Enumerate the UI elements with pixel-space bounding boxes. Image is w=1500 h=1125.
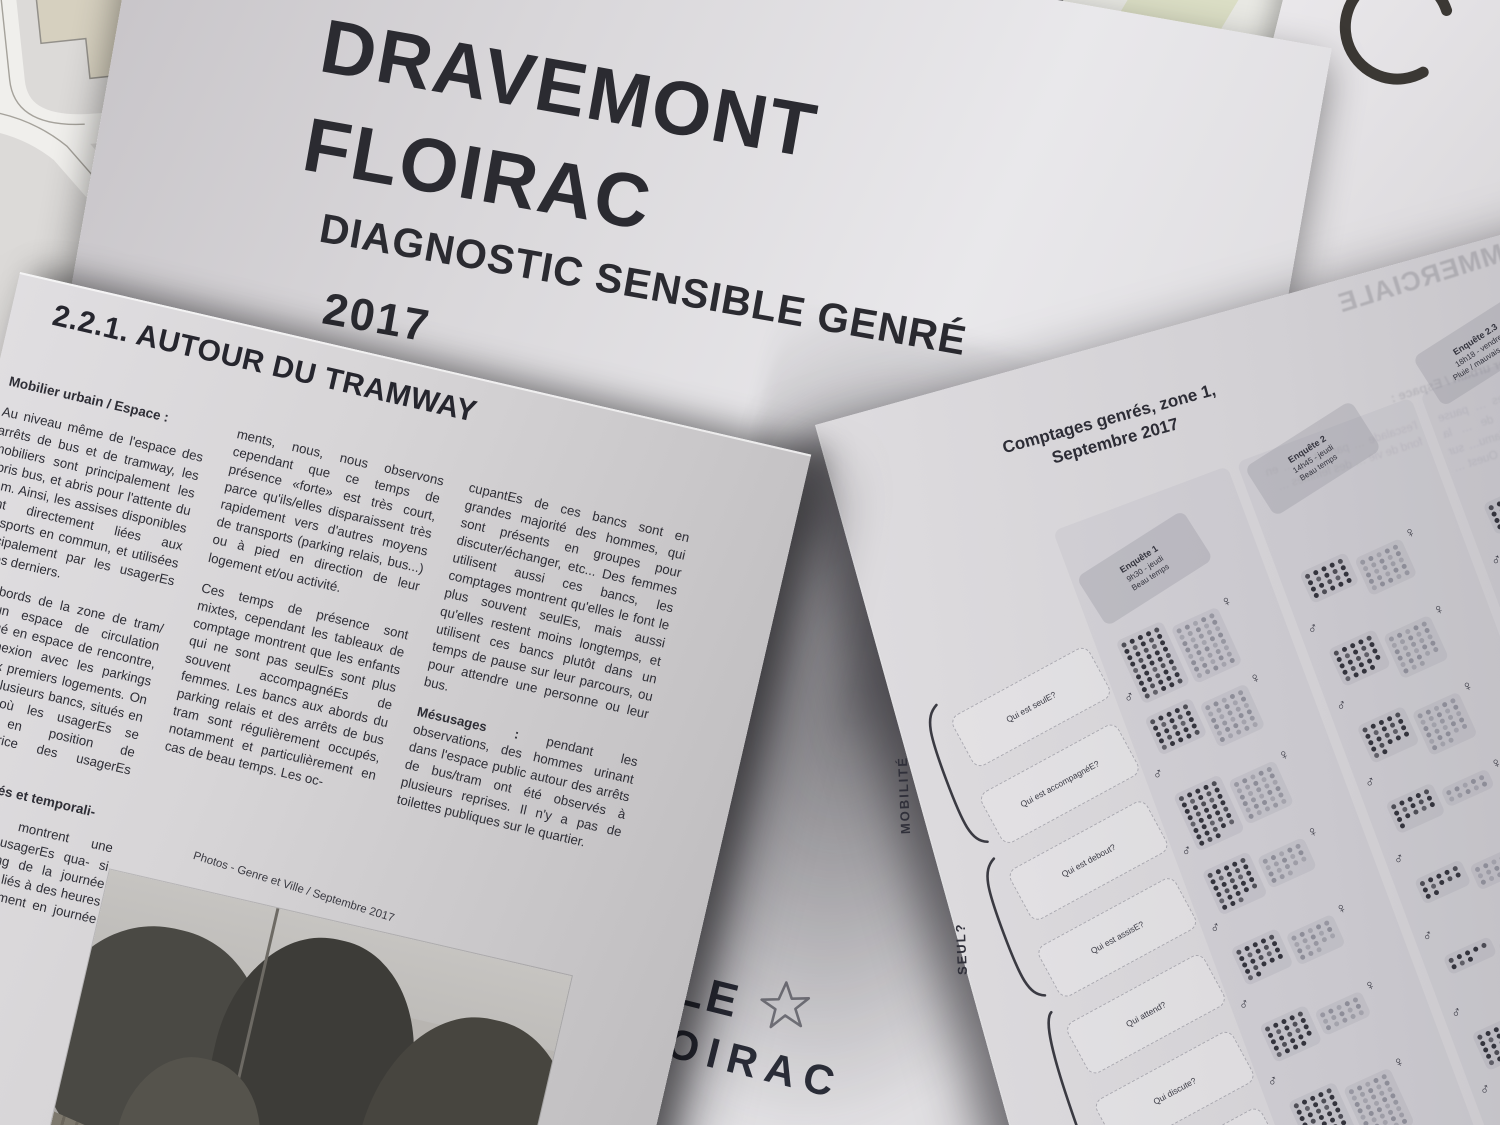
- count-dot: [1220, 822, 1227, 829]
- count-dot: [1269, 772, 1276, 779]
- count-dot: [1370, 723, 1377, 730]
- count-dot: [1481, 781, 1488, 788]
- count-dot: [1209, 820, 1216, 827]
- count-dot: [1272, 779, 1279, 786]
- count-dot: [1198, 633, 1205, 640]
- count-dot: [1421, 621, 1428, 628]
- count-dot: [1238, 896, 1245, 903]
- count-dot: [1241, 719, 1248, 726]
- count-dot: [1161, 721, 1168, 728]
- count-dot: [1193, 827, 1200, 834]
- count-dot: [1355, 1003, 1362, 1010]
- count-dot: [1221, 697, 1228, 704]
- count-dot: [1392, 728, 1399, 735]
- count-dot: [1321, 565, 1328, 572]
- count-dot: [1327, 1110, 1334, 1117]
- count-dot: [1270, 795, 1277, 802]
- count-dot: [1408, 635, 1415, 642]
- male-symbol: ♂: [1121, 688, 1137, 706]
- count-dot: [1396, 1105, 1403, 1112]
- count-dot: [1178, 736, 1185, 743]
- count-dot: [1196, 649, 1203, 656]
- count-dot: [1445, 708, 1452, 715]
- count-dot: [1382, 564, 1389, 571]
- count-dot: [1192, 620, 1199, 627]
- column3-paragraph1: cupantEs de ces bancs sont en grandes ma…: [422, 479, 691, 741]
- count-dot: [1255, 948, 1262, 955]
- count-dot: [1432, 744, 1439, 751]
- count-dot: [1252, 721, 1259, 728]
- count-dot: [1379, 1113, 1386, 1120]
- count-dot: [1221, 661, 1228, 668]
- count-dot: [1269, 934, 1276, 941]
- count-dot: [1157, 633, 1164, 640]
- count-dot: [1397, 655, 1404, 662]
- count-dot: [1425, 650, 1432, 657]
- count-dot: [1295, 1027, 1302, 1034]
- count-dot: [1396, 816, 1403, 823]
- count-dot: [1144, 693, 1151, 700]
- count-dot: [1413, 809, 1420, 816]
- count-dot: [1216, 730, 1223, 737]
- count-dot: [1293, 859, 1300, 866]
- count-dot: [1190, 636, 1197, 643]
- count-dot: [1345, 675, 1352, 682]
- count-dot: [1206, 629, 1213, 636]
- count-dot: [1264, 805, 1271, 812]
- count-dot: [1294, 941, 1301, 948]
- count-dot: [1387, 1086, 1394, 1093]
- count-dot: [1250, 796, 1257, 803]
- count-dot: [1366, 635, 1373, 642]
- count-dot: [1337, 558, 1344, 565]
- count-dot: [1279, 1035, 1286, 1042]
- count-dot: [1329, 1094, 1336, 1101]
- count-dot: [1454, 785, 1461, 792]
- count-dot: [1218, 654, 1225, 661]
- count-dot: [1219, 897, 1226, 904]
- count-dot: [1344, 1000, 1351, 1007]
- count-dot: [1459, 717, 1466, 724]
- count-dot: [1488, 875, 1495, 882]
- female-symbol: ♀: [1333, 900, 1349, 918]
- count-dot: [1313, 592, 1320, 599]
- count-dot: [1392, 544, 1399, 551]
- count-dot: [1305, 944, 1312, 951]
- count-dot: [1480, 1040, 1487, 1047]
- count-dot: [1488, 1036, 1495, 1043]
- count-dot: [1221, 881, 1228, 888]
- count-dot: [1332, 1100, 1339, 1107]
- count-dot: [1385, 570, 1392, 577]
- count-dot: [1238, 689, 1245, 696]
- count-dot: [1218, 632, 1225, 639]
- count-dot: [1419, 660, 1426, 667]
- count-dot: [1207, 836, 1214, 843]
- count-dot: [1341, 646, 1348, 653]
- count-dot: [1336, 1004, 1343, 1011]
- count-dot: [1155, 672, 1162, 679]
- count-dot: [1281, 857, 1288, 864]
- count-dot: [1496, 1033, 1500, 1040]
- count-dot: [1143, 647, 1150, 654]
- count-dot: [1182, 640, 1189, 647]
- count-dot: [1246, 870, 1253, 877]
- female-symbol: ♀: [1305, 823, 1321, 841]
- count-dot: [1176, 627, 1183, 634]
- male-symbol: ♂: [1333, 696, 1349, 714]
- count-dot: [1483, 862, 1490, 869]
- count-dot: [1360, 1114, 1367, 1121]
- count-dot: [1307, 579, 1314, 586]
- count-dot: [1157, 656, 1164, 663]
- mesusages-text: pendant les observations, des hommes uri…: [395, 721, 639, 849]
- count-dot: [1158, 737, 1165, 744]
- count-dot: [1388, 577, 1395, 584]
- count-dot: [1258, 770, 1265, 777]
- count-dot: [1384, 732, 1391, 739]
- count-dot: [1146, 653, 1153, 660]
- count-dot: [1199, 840, 1206, 847]
- count-dot: [1440, 741, 1447, 748]
- count-dot: [1493, 1026, 1500, 1033]
- count-dot: [1347, 1007, 1354, 1014]
- count-dot: [1350, 665, 1357, 672]
- count-dot: [1350, 1013, 1357, 1020]
- count-dot: [1289, 1014, 1296, 1021]
- count-dot: [1401, 563, 1408, 570]
- count-dot: [1413, 624, 1420, 631]
- count-dot: [1359, 1091, 1366, 1098]
- count-dot: [1390, 1115, 1397, 1122]
- count-dot: [1310, 1118, 1317, 1125]
- count-dot: [1132, 644, 1139, 651]
- count-dot: [1290, 1037, 1297, 1044]
- count-dot: [1332, 568, 1339, 575]
- count-dot: [1245, 807, 1252, 814]
- count-dot: [1207, 872, 1214, 879]
- count-dot: [1448, 737, 1455, 744]
- count-dot: [1456, 710, 1463, 717]
- count-dot: [1368, 739, 1375, 746]
- count-dot: [1436, 873, 1443, 880]
- count-dot: [1240, 857, 1247, 864]
- article-column-1: Mobilier urbain / Espace : Au niveau mêm…: [0, 373, 212, 959]
- count-dot: [1319, 582, 1326, 589]
- count-dot: [1216, 891, 1223, 898]
- female-dot-cluster: [1469, 845, 1500, 891]
- count-dot: [1497, 1056, 1500, 1063]
- article-column-3: cupantEs de ces bancs sont en grandes ma…: [392, 479, 691, 872]
- count-dot: [1373, 729, 1380, 736]
- count-dot: [1363, 565, 1370, 572]
- count-dot: [1429, 738, 1436, 745]
- count-dot: [1230, 716, 1237, 723]
- count-dot: [1256, 971, 1263, 978]
- count-dot: [1335, 1107, 1342, 1114]
- count-dot: [1452, 865, 1459, 872]
- count-dot: [1446, 789, 1453, 796]
- group-label: SEUL?: [953, 922, 970, 975]
- count-dot: [1155, 731, 1162, 738]
- count-dot: [1293, 1102, 1300, 1109]
- count-dot: [1144, 670, 1151, 677]
- count-dot: [1287, 870, 1294, 877]
- count-dot: [1394, 648, 1401, 655]
- count-dot: [1365, 1081, 1372, 1088]
- count-dot: [1262, 858, 1269, 865]
- male-dot-cluster: [1414, 859, 1472, 905]
- count-dot: [1395, 550, 1402, 557]
- count-dot: [1338, 581, 1345, 588]
- male-dot-cluster: [1230, 928, 1293, 986]
- count-dot: [1445, 730, 1452, 737]
- count-dot: [1310, 934, 1317, 941]
- count-dot: [1279, 850, 1286, 857]
- count-dot: [1433, 889, 1440, 896]
- count-dot: [1329, 1117, 1336, 1124]
- count-dot: [1260, 938, 1267, 945]
- count-dot: [1453, 704, 1460, 711]
- count-dot: [1243, 863, 1250, 870]
- count-dot: [1423, 788, 1430, 795]
- count-dot: [1327, 926, 1334, 933]
- count-dot: [1485, 1030, 1492, 1037]
- count-dot: [1212, 826, 1219, 833]
- count-dot: [1416, 631, 1423, 638]
- count-dot: [1379, 581, 1386, 588]
- count-dot: [1168, 658, 1175, 665]
- count-dot: [1270, 1038, 1277, 1045]
- count-dot: [1185, 647, 1192, 654]
- count-dot: [1421, 805, 1428, 812]
- count-dot: [1321, 1120, 1328, 1125]
- count-dot: [1398, 557, 1405, 564]
- count-dot: [1239, 794, 1246, 801]
- count-dot: [1362, 1097, 1369, 1104]
- count-dot: [1372, 648, 1379, 655]
- count-dot: [1357, 1107, 1364, 1114]
- count-dot: [1307, 1111, 1314, 1118]
- count-dot: [1271, 940, 1278, 947]
- count-dot: [1124, 648, 1131, 655]
- count-dot: [1247, 790, 1254, 797]
- count-dot: [1385, 1103, 1392, 1110]
- count-dot: [1225, 726, 1232, 733]
- count-dot: [1213, 701, 1220, 708]
- count-dot: [1244, 725, 1251, 732]
- count-dot: [1429, 801, 1436, 808]
- count-dot: [1267, 1032, 1274, 1039]
- count-dot: [1273, 860, 1280, 867]
- count-dot: [1214, 787, 1221, 794]
- count-dot: [1179, 634, 1186, 641]
- count-dot: [1395, 712, 1402, 719]
- count-dot: [1461, 723, 1468, 730]
- count-dot: [1220, 799, 1227, 806]
- count-dot: [1141, 663, 1148, 670]
- count-dot: [1232, 884, 1239, 891]
- count-dot: [1199, 656, 1206, 663]
- count-dot: [1313, 940, 1320, 947]
- male-dot-cluster: [1357, 705, 1420, 763]
- count-dot: [1148, 637, 1155, 644]
- count-dot: [1436, 711, 1443, 718]
- count-dot: [1379, 558, 1386, 565]
- count-dot: [1188, 653, 1195, 660]
- count-dot: [1263, 944, 1270, 951]
- count-dot: [1258, 954, 1265, 961]
- count-dot: [1247, 974, 1254, 981]
- count-dot: [1364, 651, 1371, 658]
- count-dot: [1467, 956, 1474, 963]
- count-dot: [1494, 865, 1500, 872]
- count-dot: [1379, 742, 1386, 749]
- count-dot: [1423, 725, 1430, 732]
- count-dot: [1387, 1109, 1394, 1116]
- count-dot: [1403, 667, 1410, 674]
- count-dot: [1494, 517, 1500, 524]
- count-dot: [1313, 569, 1320, 576]
- count-dot: [1298, 849, 1305, 856]
- count-dot: [1486, 869, 1493, 876]
- male-symbol: ♂: [1207, 919, 1223, 937]
- count-dot: [1236, 729, 1243, 736]
- count-dot: [1215, 868, 1222, 875]
- count-dot: [1491, 859, 1498, 866]
- count-dot: [1206, 813, 1213, 820]
- count-dot: [1195, 788, 1202, 795]
- count-dot: [1215, 832, 1222, 839]
- male-symbol: ♂: [1236, 996, 1252, 1014]
- count-dot: [1293, 1044, 1300, 1051]
- count-dot: [1242, 777, 1249, 784]
- count-dot: [1174, 671, 1181, 678]
- count-dot: [1450, 697, 1457, 704]
- count-dot: [1163, 669, 1170, 676]
- count-dot: [1187, 814, 1194, 821]
- count-dot: [1152, 689, 1159, 696]
- count-dot: [1135, 673, 1142, 680]
- count-dot: [1399, 800, 1406, 807]
- count-dot: [1428, 876, 1435, 883]
- count-dot: [1373, 1077, 1380, 1084]
- count-dot: [1267, 789, 1274, 796]
- count-dot: [1384, 1080, 1391, 1087]
- count-dot: [1407, 796, 1414, 803]
- count-dot: [1209, 613, 1216, 620]
- count-dot: [1248, 813, 1255, 820]
- column2-paragraph2: Ces temps de présence sont mixtes, cepen…: [163, 579, 410, 803]
- count-dot: [1265, 864, 1272, 871]
- count-dot: [1399, 1112, 1406, 1119]
- count-dot: [1213, 723, 1220, 730]
- count-dot: [1315, 1108, 1322, 1115]
- count-dot: [1201, 800, 1208, 807]
- count-dot: [1365, 572, 1372, 579]
- count-dot: [1274, 947, 1281, 954]
- count-dot: [1400, 661, 1407, 668]
- count-dot: [1210, 658, 1217, 665]
- male-symbol: ♂: [1391, 850, 1407, 868]
- count-dot: [1488, 1059, 1495, 1066]
- count-dot: [1361, 645, 1368, 652]
- count-dot: [1222, 720, 1229, 727]
- count-dot: [1301, 1040, 1308, 1047]
- count-dot: [1315, 923, 1322, 930]
- count-dot: [1381, 1073, 1388, 1080]
- count-dot: [1473, 784, 1480, 791]
- count-dot: [1410, 802, 1417, 809]
- female-symbol: ♀: [1391, 1053, 1407, 1071]
- count-dot: [1433, 705, 1440, 712]
- count-dot: [1430, 640, 1437, 647]
- count-dot: [1377, 574, 1384, 581]
- count-dot: [1177, 714, 1184, 721]
- count-dot: [1316, 576, 1323, 583]
- count-dot: [1276, 1028, 1283, 1035]
- male-dot-cluster: [1144, 697, 1207, 755]
- count-dot: [1376, 1083, 1383, 1090]
- count-dot: [1477, 1034, 1484, 1041]
- count-dot: [1145, 630, 1152, 637]
- count-dot: [1243, 886, 1250, 893]
- count-dot: [1284, 1047, 1291, 1054]
- count-dot: [1183, 726, 1190, 733]
- count-dot: [1357, 1085, 1364, 1092]
- count-dot: [1219, 713, 1226, 720]
- count-dot: [1273, 802, 1280, 809]
- count-dot: [1281, 1041, 1288, 1048]
- count-dot: [1194, 729, 1201, 736]
- count-dot: [1196, 833, 1203, 840]
- count-dot: [1240, 880, 1247, 887]
- count-dot: [1320, 1011, 1327, 1018]
- count-dot: [1238, 712, 1245, 719]
- count-dot: [1253, 964, 1260, 971]
- count-dot: [1368, 1110, 1375, 1117]
- count-dot: [1243, 702, 1250, 709]
- count-dot: [1169, 681, 1176, 688]
- count-dot: [1405, 628, 1412, 635]
- count-dot: [1281, 1018, 1288, 1025]
- count-dot: [1340, 564, 1347, 571]
- count-dot: [1336, 656, 1343, 663]
- count-dot: [1135, 651, 1142, 658]
- count-dot: [1237, 874, 1244, 881]
- cover-year: 2017: [320, 286, 434, 349]
- count-dot: [1198, 817, 1205, 824]
- female-symbol: ♀: [1276, 746, 1292, 764]
- count-dot: [1167, 734, 1174, 741]
- count-dot: [1321, 1098, 1328, 1105]
- count-dot: [1371, 1116, 1378, 1123]
- count-dot: [1459, 960, 1466, 967]
- count-dot: [1227, 894, 1234, 901]
- count-dot: [1249, 715, 1256, 722]
- female-dot-cluster: [1199, 683, 1265, 748]
- count-dot: [1358, 639, 1365, 646]
- count-dot: [1224, 703, 1231, 710]
- count-dot: [1344, 652, 1351, 659]
- male-symbol: ♂: [1305, 620, 1321, 638]
- count-dot: [1224, 887, 1231, 894]
- count-dot: [1343, 571, 1350, 578]
- count-dot: [1273, 1022, 1280, 1029]
- count-dot: [1422, 644, 1429, 651]
- female-dot-cluster: [1354, 538, 1417, 596]
- count-dot: [1229, 657, 1236, 664]
